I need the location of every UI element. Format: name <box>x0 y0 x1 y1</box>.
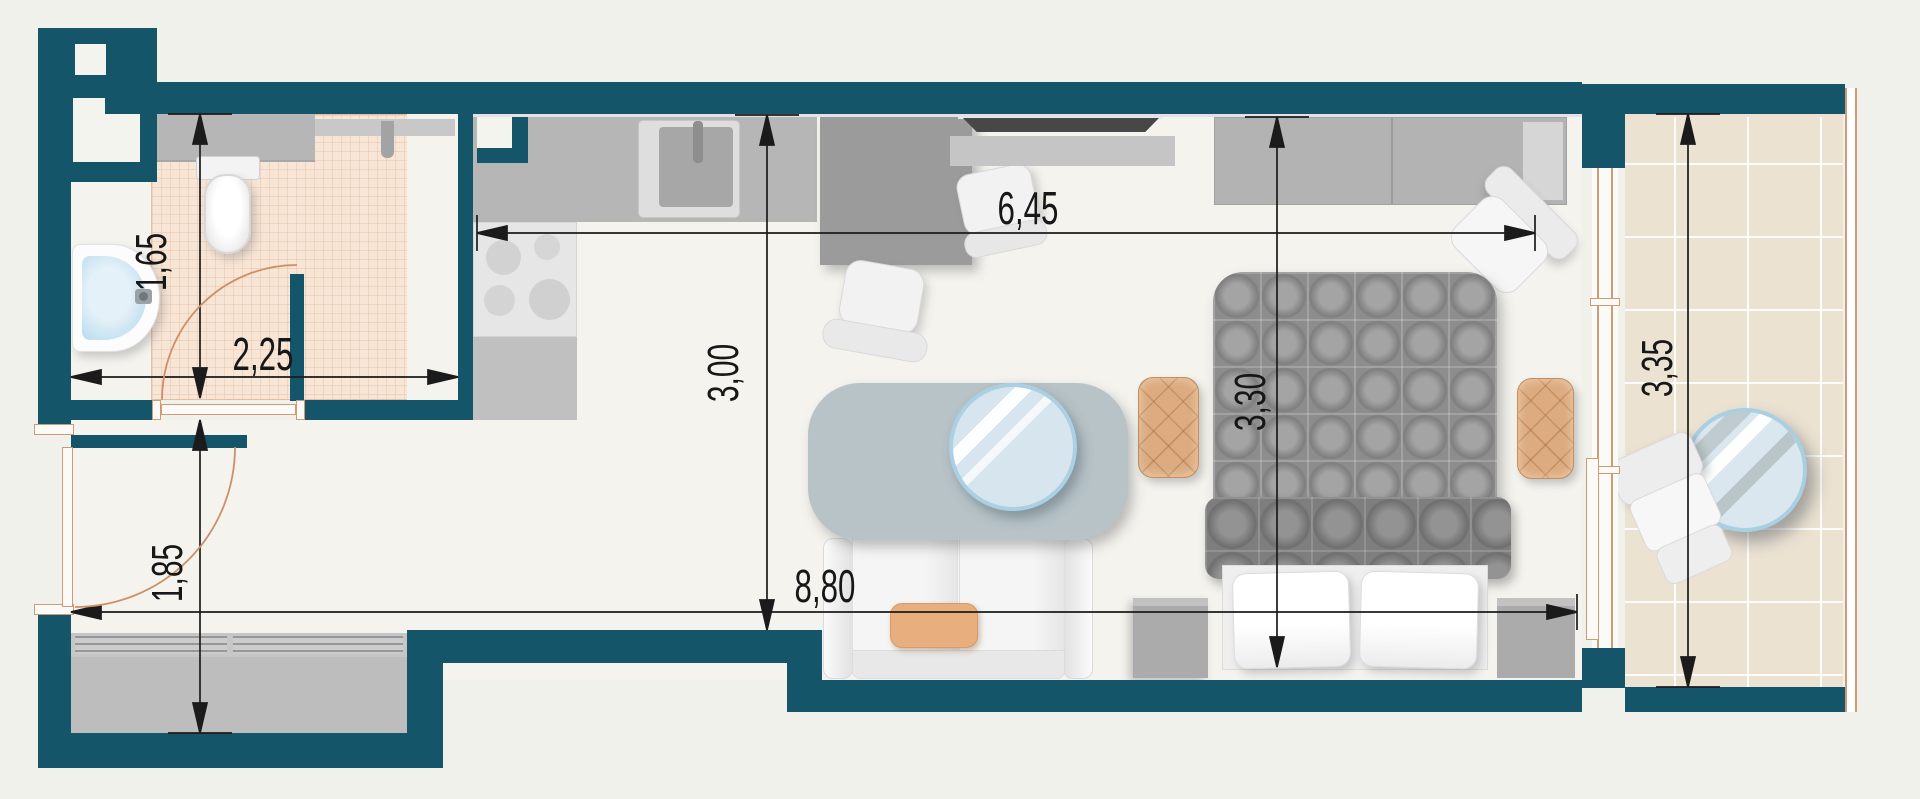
entrance-door-leaf <box>62 447 73 607</box>
toilet <box>196 156 260 258</box>
wall-hallway-stub <box>71 435 247 448</box>
burner <box>486 240 521 275</box>
vent-shaft <box>75 44 106 75</box>
nightstand-right <box>1497 598 1575 678</box>
glazing-mullion <box>1590 298 1620 306</box>
sofa <box>823 538 1093 680</box>
burner <box>484 285 515 316</box>
sofa-armrest <box>1063 538 1093 679</box>
wall-bottom-kitchen <box>443 630 822 663</box>
tv <box>963 118 1159 132</box>
sliding-door-track <box>233 636 403 654</box>
dimension-label-living-depth-left: 3,00 <box>702 344 746 402</box>
wall-niche-bottom <box>477 148 528 163</box>
nightstand-left <box>1133 598 1208 678</box>
door-frame <box>34 424 74 435</box>
dimension-label-living-depth-right: 3,30 <box>1229 373 1273 431</box>
bathroom-counter <box>151 114 315 162</box>
sliding-door-track <box>75 636 227 654</box>
dimension-label-bathroom-width: 2,25 <box>233 331 294 377</box>
double-bed <box>1205 272 1511 676</box>
wall-niche <box>477 114 512 148</box>
wall-top <box>105 82 1582 114</box>
balcony-railing <box>1845 88 1857 712</box>
wall-balcony-stub-bottom <box>1582 648 1625 688</box>
wardrobe-body <box>71 657 407 733</box>
wall-bathroom-bottom-left <box>71 400 160 420</box>
balcony-glazing <box>1597 168 1613 648</box>
coffee-table-glass <box>949 383 1077 511</box>
balcony-sill-line <box>1625 114 1843 117</box>
office-chair <box>819 254 941 371</box>
wall-bathroom-bottom-right <box>297 400 473 420</box>
door-frame <box>152 400 161 420</box>
pillow <box>1232 570 1351 669</box>
base-cabinet <box>473 337 577 420</box>
tv-console <box>950 136 1175 166</box>
faucet-handle <box>139 292 148 301</box>
sofa-back <box>852 650 1065 679</box>
wall-balcony-stub-top <box>1582 84 1625 168</box>
dimension-label-bathroom-depth: 1,65 <box>130 233 174 291</box>
dimension-label-hallway-depth: 1,85 <box>146 544 190 602</box>
balcony-door-leaf <box>1586 458 1599 640</box>
kitchen-sink <box>638 120 740 218</box>
pillow <box>1359 570 1479 669</box>
bathroom-door-leaf <box>161 404 296 415</box>
sofa-cushion <box>890 603 978 648</box>
dimension-label-living-width: 6,45 <box>998 185 1059 231</box>
dimension-label-balcony-length: 3,35 <box>1636 339 1680 397</box>
wall-bottom-left <box>38 733 443 768</box>
stove <box>473 222 577 337</box>
wall-step <box>407 630 443 768</box>
wall-balcony-bottom <box>1625 687 1845 712</box>
sliding-wardrobe <box>71 633 407 733</box>
bedside-pouf-left <box>1138 377 1199 478</box>
window-sill-line <box>473 114 1582 117</box>
sink-faucet <box>693 121 703 163</box>
wall-balcony-top <box>1625 84 1845 114</box>
wall-bottom-living <box>787 680 1582 712</box>
wall-left-upper <box>38 28 71 433</box>
floor-plan: 1,65 2,25 1,85 3,00 6,45 8,80 3,30 3,35 <box>0 0 1920 799</box>
bedside-pouf-right <box>1517 378 1574 479</box>
balcony-floor <box>1625 114 1843 687</box>
door-frame <box>296 400 305 420</box>
wall-bathroom-right <box>458 114 473 420</box>
burner <box>529 279 570 320</box>
towel-hook <box>381 121 394 158</box>
dimension-label-apartment-length: 8,80 <box>795 563 856 609</box>
burner <box>534 234 560 260</box>
toilet-bowl <box>204 174 251 254</box>
